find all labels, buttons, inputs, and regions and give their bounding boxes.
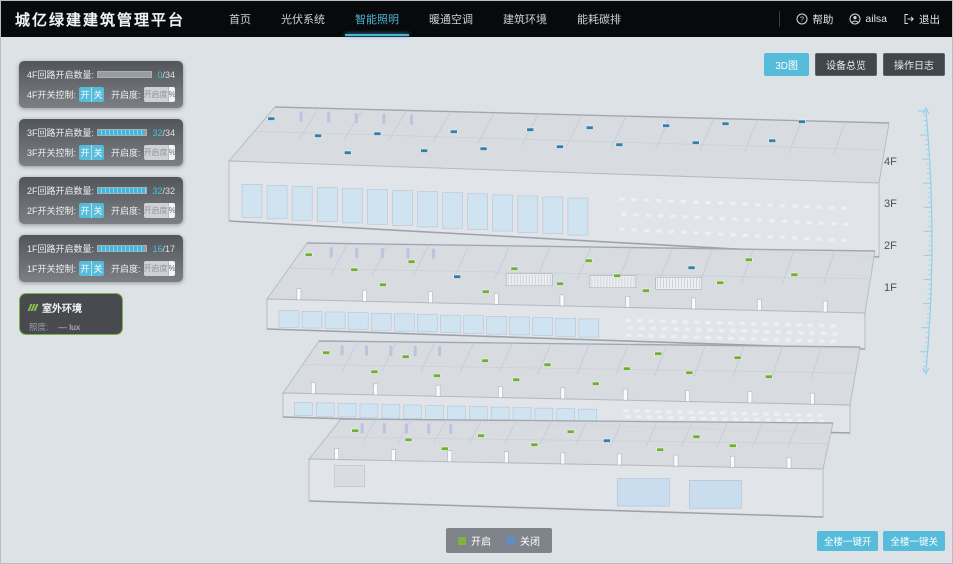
- logout-icon: [903, 13, 915, 25]
- percent-button[interactable]: %: [168, 203, 175, 218]
- nav-item-smart-lighting[interactable]: 智能照明: [353, 7, 401, 31]
- legend-off: 关闭: [507, 533, 540, 548]
- floor-zoom-ruler[interactable]: [907, 103, 945, 379]
- nav-item-hvac[interactable]: 暖通空调: [427, 7, 475, 31]
- circuit-count-value: 0/34: [157, 70, 175, 80]
- username: ailsa: [865, 13, 887, 25]
- help-icon: ?: [796, 13, 808, 25]
- top-bar: 城亿绿建建筑管理平台 首页 光伏系统 智能照明 暖通空调 建筑环境 能耗碳排 ?…: [1, 1, 952, 37]
- dim-label: 开启度:: [111, 146, 141, 159]
- user-icon: [849, 13, 861, 25]
- switch-control-label: 4F开关控制:: [27, 88, 76, 101]
- all-off-button[interactable]: 全楼一键关: [883, 531, 945, 551]
- svg-text:?: ?: [800, 15, 804, 24]
- switch-on-button[interactable]: 开: [79, 145, 92, 160]
- outdoor-env-panel: 室外环境 照度: — lux: [19, 293, 123, 335]
- main-canvas: 3D图 设备总览 操作日志 4F回路开启数量: 0/34 4F开关控制: 开关 …: [1, 37, 952, 563]
- switch-off-button[interactable]: 关: [92, 145, 104, 160]
- switch-control-label: 1F开关控制:: [27, 262, 76, 275]
- nav-item-pv-system[interactable]: 光伏系统: [279, 7, 327, 31]
- legend-on: 开启: [458, 533, 491, 548]
- dim-input[interactable]: 开启度: [144, 261, 168, 276]
- floor-panel-1f: 1F回路开启数量: 16/17 1F开关控制: 开关 开启度: 开启度%: [19, 235, 183, 282]
- circuit-count-value: 32/32: [152, 186, 175, 196]
- floor-scale-label-2f[interactable]: 2F: [884, 240, 897, 252]
- floor-panel-2f: 2F回路开启数量: 32/32 2F开关控制: 开关 开启度: 开启度%: [19, 177, 183, 224]
- circuit-count-label: 2F回路开启数量:: [27, 184, 94, 197]
- circuit-count-label: 4F回路开启数量:: [27, 68, 94, 81]
- circuit-progressbar: [97, 71, 152, 78]
- bulk-controls: 全楼一键开 全楼一键关: [817, 531, 945, 551]
- all-on-button[interactable]: 全楼一键开: [817, 531, 879, 551]
- nav-item-building-env[interactable]: 建筑环境: [501, 7, 549, 31]
- main-nav: 首页 光伏系统 智能照明 暖通空调 建筑环境 能耗碳排: [227, 7, 623, 31]
- building-3d-view[interactable]: [223, 59, 891, 529]
- view-3d-button[interactable]: 3D图: [764, 53, 809, 76]
- device-overview-button[interactable]: 设备总览: [815, 53, 877, 76]
- switch-control-label: 2F开关控制:: [27, 204, 76, 217]
- outdoor-env-title: 室外环境: [42, 300, 82, 315]
- floor-panel-4f: 4F回路开启数量: 0/34 4F开关控制: 开关 开启度: 开启度%: [19, 61, 183, 108]
- floor-scale-label-1f[interactable]: 1F: [884, 282, 897, 294]
- floor-scale-label-3f[interactable]: 3F: [884, 198, 897, 210]
- light-status-legend: 开启 关闭: [446, 528, 552, 553]
- circuit-progressbar: [97, 187, 147, 194]
- legend-off-swatch: [507, 537, 515, 545]
- help-label: 帮助: [812, 12, 833, 27]
- percent-button[interactable]: %: [168, 87, 175, 102]
- legend-on-label: 开启: [471, 533, 491, 548]
- circuit-count-value: 32/34: [152, 128, 175, 138]
- nav-item-energy-carbon[interactable]: 能耗碳排: [575, 7, 623, 31]
- divider: [779, 11, 780, 27]
- switch-control-label: 3F开关控制:: [27, 146, 76, 159]
- dim-input[interactable]: 开启度: [144, 87, 168, 102]
- app-title: 城亿绿建建筑管理平台: [15, 9, 185, 30]
- switch-on-button[interactable]: 开: [79, 87, 92, 102]
- outdoor-env-icon: [29, 304, 37, 311]
- circuit-count-value: 16/17: [152, 244, 175, 254]
- switch-on-button[interactable]: 开: [79, 203, 92, 218]
- view-switcher: 3D图 设备总览 操作日志: [764, 53, 945, 76]
- user-menu[interactable]: ailsa: [849, 13, 887, 25]
- dim-input[interactable]: 开启度: [144, 145, 168, 160]
- operation-log-button[interactable]: 操作日志: [883, 53, 945, 76]
- help-button[interactable]: ? 帮助: [796, 12, 833, 27]
- floor-scale-label-4f[interactable]: 4F: [884, 156, 897, 168]
- percent-button[interactable]: %: [168, 145, 175, 160]
- circuit-count-label: 3F回路开启数量:: [27, 126, 94, 139]
- circuit-progressbar: [97, 129, 147, 136]
- logout-label: 退出: [919, 12, 940, 27]
- percent-button[interactable]: %: [168, 261, 175, 276]
- legend-on-swatch: [458, 537, 466, 545]
- logout-button[interactable]: 退出: [903, 12, 940, 27]
- legend-off-label: 关闭: [520, 533, 540, 548]
- dim-label: 开启度:: [111, 204, 141, 217]
- illuminance-value: — lux: [58, 322, 80, 332]
- switch-off-button[interactable]: 关: [92, 203, 104, 218]
- circuit-count-label: 1F回路开启数量:: [27, 242, 94, 255]
- dim-input[interactable]: 开启度: [144, 203, 168, 218]
- floor-panel-3f: 3F回路开启数量: 32/34 3F开关控制: 开关 开启度: 开启度%: [19, 119, 183, 166]
- dim-label: 开启度:: [111, 262, 141, 275]
- switch-off-button[interactable]: 关: [92, 261, 104, 276]
- circuit-progressbar: [97, 245, 147, 252]
- switch-off-button[interactable]: 关: [92, 87, 104, 102]
- user-area: ? 帮助 ailsa 退出: [779, 11, 940, 27]
- illuminance-label: 照度:: [29, 321, 48, 333]
- nav-item-home[interactable]: 首页: [227, 7, 253, 31]
- dim-label: 开启度:: [111, 88, 141, 101]
- switch-on-button[interactable]: 开: [79, 261, 92, 276]
